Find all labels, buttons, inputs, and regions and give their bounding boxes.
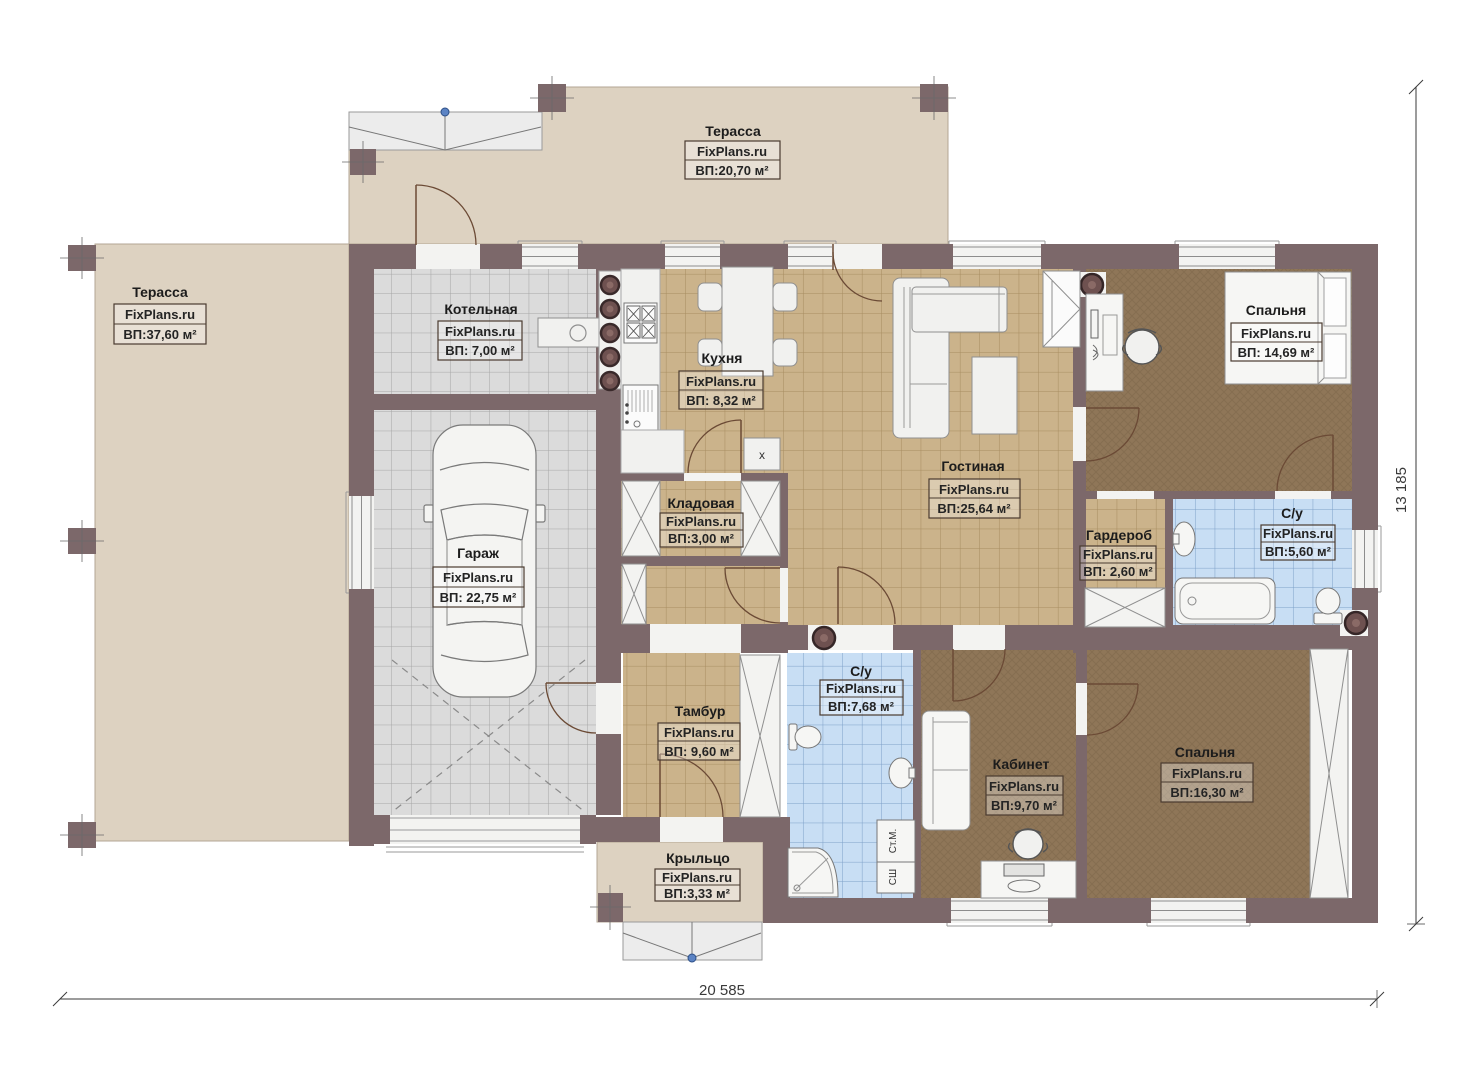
svg-text:ВП:20,70 м²: ВП:20,70 м² — [695, 163, 769, 178]
svg-text:Кладовая: Кладовая — [667, 495, 734, 511]
svg-text:FixPlans.ru: FixPlans.ru — [125, 307, 195, 322]
svg-text:ВП: 22,75 м²: ВП: 22,75 м² — [440, 590, 517, 605]
svg-text:Крыльцо: Крыльцо — [666, 850, 730, 866]
svg-text:FixPlans.ru: FixPlans.ru — [445, 324, 515, 339]
svg-text:Ст.М.: Ст.М. — [888, 829, 899, 854]
svg-text:Тамбур: Тамбур — [675, 703, 726, 719]
svg-text:FixPlans.ru: FixPlans.ru — [826, 681, 896, 696]
svg-text:x: x — [759, 448, 765, 462]
svg-text:Терасса: Терасса — [132, 284, 188, 300]
svg-text:СШ: СШ — [888, 869, 899, 885]
svg-text:13 185: 13 185 — [1393, 467, 1410, 513]
svg-text:ВП: 9,60 м²: ВП: 9,60 м² — [664, 744, 734, 759]
svg-text:Кабинет: Кабинет — [993, 756, 1050, 772]
svg-text:ВП: 7,00 м²: ВП: 7,00 м² — [445, 343, 515, 358]
svg-text:FixPlans.ru: FixPlans.ru — [686, 374, 756, 389]
svg-text:FixPlans.ru: FixPlans.ru — [1263, 526, 1333, 541]
svg-text:Кухня: Кухня — [702, 350, 743, 366]
svg-text:FixPlans.ru: FixPlans.ru — [662, 870, 732, 885]
svg-text:20 585: 20 585 — [699, 982, 745, 999]
svg-text:FixPlans.ru: FixPlans.ru — [939, 482, 1009, 497]
svg-text:Котельная: Котельная — [444, 301, 517, 317]
svg-text:ВП: 14,69 м²: ВП: 14,69 м² — [1238, 345, 1315, 360]
svg-text:ВП:25,64 м²: ВП:25,64 м² — [937, 501, 1011, 516]
svg-text:ВП: 2,60 м²: ВП: 2,60 м² — [1083, 564, 1153, 579]
svg-text:ВП:7,68 м²: ВП:7,68 м² — [828, 699, 895, 714]
svg-text:ВП:16,30 м²: ВП:16,30 м² — [1170, 785, 1244, 800]
svg-text:ВП: 8,32 м²: ВП: 8,32 м² — [686, 393, 756, 408]
svg-text:FixPlans.ru: FixPlans.ru — [1241, 326, 1311, 341]
svg-text:Гардероб: Гардероб — [1086, 527, 1153, 543]
svg-text:ВП:9,70 м²: ВП:9,70 м² — [991, 798, 1058, 813]
svg-text:Гостиная: Гостиная — [941, 458, 1004, 474]
svg-text:FixPlans.ru: FixPlans.ru — [1172, 766, 1242, 781]
svg-text:Спальня: Спальня — [1246, 302, 1306, 318]
svg-text:Спальня: Спальня — [1175, 744, 1235, 760]
svg-text:FixPlans.ru: FixPlans.ru — [664, 725, 734, 740]
svg-text:С/у: С/у — [850, 663, 872, 679]
svg-text:ВП:5,60 м²: ВП:5,60 м² — [1265, 544, 1332, 559]
svg-text:FixPlans.ru: FixPlans.ru — [666, 514, 736, 529]
svg-text:FixPlans.ru: FixPlans.ru — [989, 779, 1059, 794]
svg-text:FixPlans.ru: FixPlans.ru — [697, 144, 767, 159]
svg-text:ВП:37,60 м²: ВП:37,60 м² — [123, 327, 197, 342]
svg-text:Терасса: Терасса — [705, 123, 761, 139]
svg-text:ВП:3,00 м²: ВП:3,00 м² — [668, 531, 735, 546]
svg-text:Гараж: Гараж — [457, 545, 500, 561]
svg-text:FixPlans.ru: FixPlans.ru — [443, 570, 513, 585]
svg-text:FixPlans.ru: FixPlans.ru — [1083, 547, 1153, 562]
svg-text:С/у: С/у — [1281, 505, 1303, 521]
svg-text:ВП:3,33 м²: ВП:3,33 м² — [664, 886, 731, 901]
